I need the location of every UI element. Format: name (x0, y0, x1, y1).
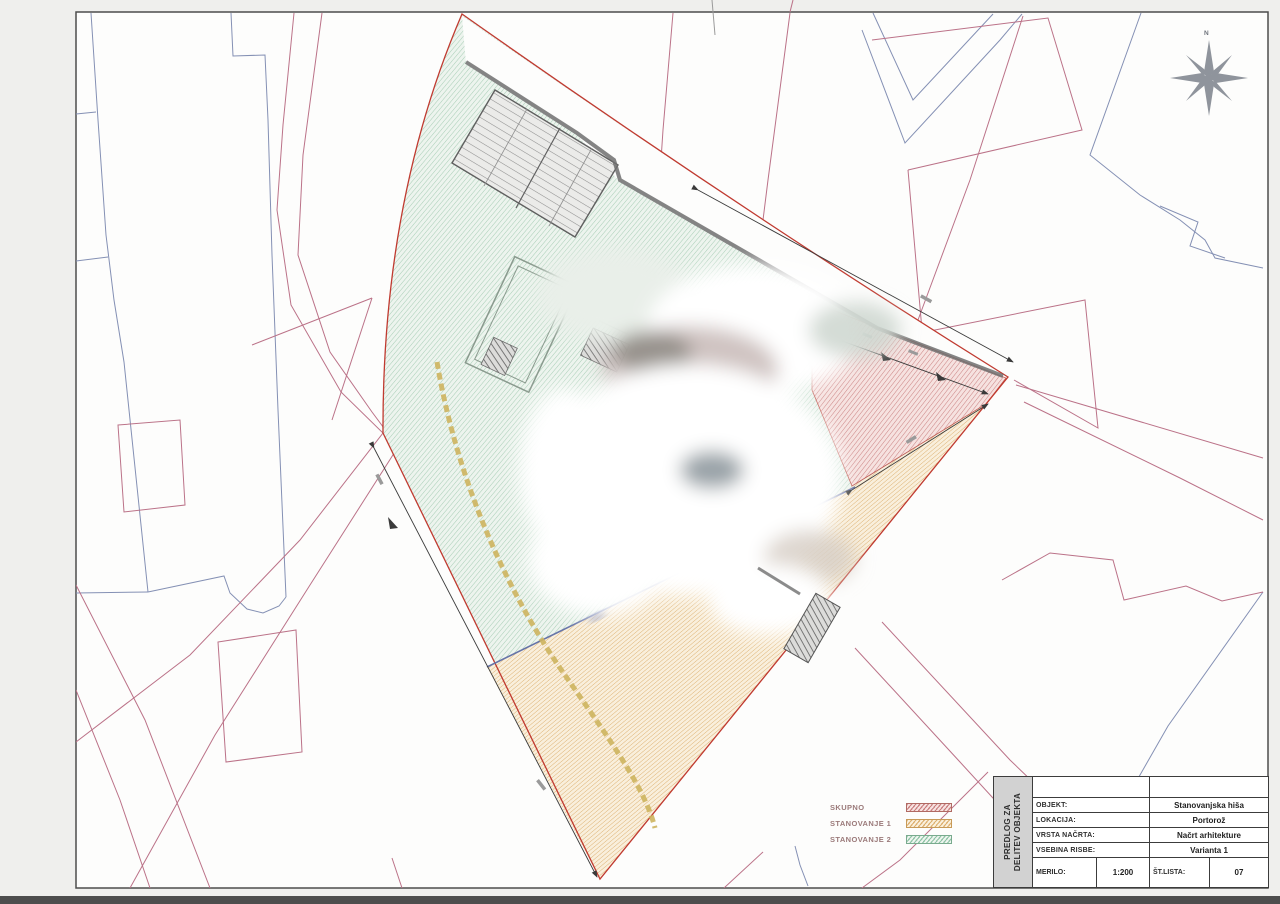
merilo-label: MERILO: (1033, 858, 1097, 887)
title-block-row-objekt: OBJEKT: Stanovanjska hiša (1033, 798, 1268, 813)
lokacija-label: LOKACIJA: (1033, 813, 1150, 827)
site-plan-page: N SKUPNO STANOVANJE 1 STANOVANJE 2 PREDL… (0, 0, 1280, 904)
title-block-blank-row (1033, 777, 1268, 798)
legend-label: STANOVANJE 2 (830, 835, 906, 844)
legend-item-stanovanje1: STANOVANJE 1 (830, 815, 964, 831)
title-block-row-merilo: MERILO: 1:200 ŠT.LISTA: 07 (1033, 858, 1268, 887)
merilo-value: 1:200 (1097, 858, 1150, 887)
legend-swatch-skupno (906, 803, 952, 812)
compass-north-label: N (1204, 30, 1209, 37)
vrsta-value: Načrt arhitekture (1150, 828, 1268, 842)
objekt-label: OBJEKT: (1033, 798, 1150, 812)
st-lista-value: 07 (1210, 858, 1268, 887)
lokacija-value: Portorož (1150, 813, 1268, 827)
title-block-row-lokacija: LOKACIJA: Portorož (1033, 813, 1268, 828)
legend-item-stanovanje2: STANOVANJE 2 (830, 831, 964, 847)
title-block-side: PREDLOG ZA DELITEV OBJEKTA (994, 777, 1033, 887)
legend: SKUPNO STANOVANJE 1 STANOVANJE 2 (830, 799, 964, 847)
title-block-row-vsebina: VSEBINA RISBE: Varianta 1 (1033, 843, 1268, 858)
vsebina-label: VSEBINA RISBE: (1033, 843, 1150, 857)
vsebina-value: Varianta 1 (1150, 843, 1268, 857)
objekt-value: Stanovanjska hiša (1150, 798, 1268, 812)
side-label-line2: DELITEV OBJEKTA (1013, 793, 1023, 871)
legend-swatch-stanovanje2 (906, 835, 952, 844)
site-plan-drawing (0, 0, 1280, 904)
title-block: PREDLOG ZA DELITEV OBJEKTA OBJEKT: Stano… (993, 776, 1269, 888)
vrsta-label: VRSTA NAČRTA: (1033, 828, 1150, 842)
legend-label: STANOVANJE 1 (830, 819, 906, 828)
st-lista-label: ŠT.LISTA: (1150, 858, 1210, 887)
side-label-line1: PREDLOG ZA (1003, 793, 1013, 871)
scan-edge-band (0, 896, 1280, 904)
title-block-row-vrsta: VRSTA NAČRTA: Načrt arhitekture (1033, 828, 1268, 843)
legend-label: SKUPNO (830, 803, 906, 812)
legend-item-skupno: SKUPNO (830, 799, 964, 815)
legend-swatch-stanovanje1 (906, 819, 952, 828)
